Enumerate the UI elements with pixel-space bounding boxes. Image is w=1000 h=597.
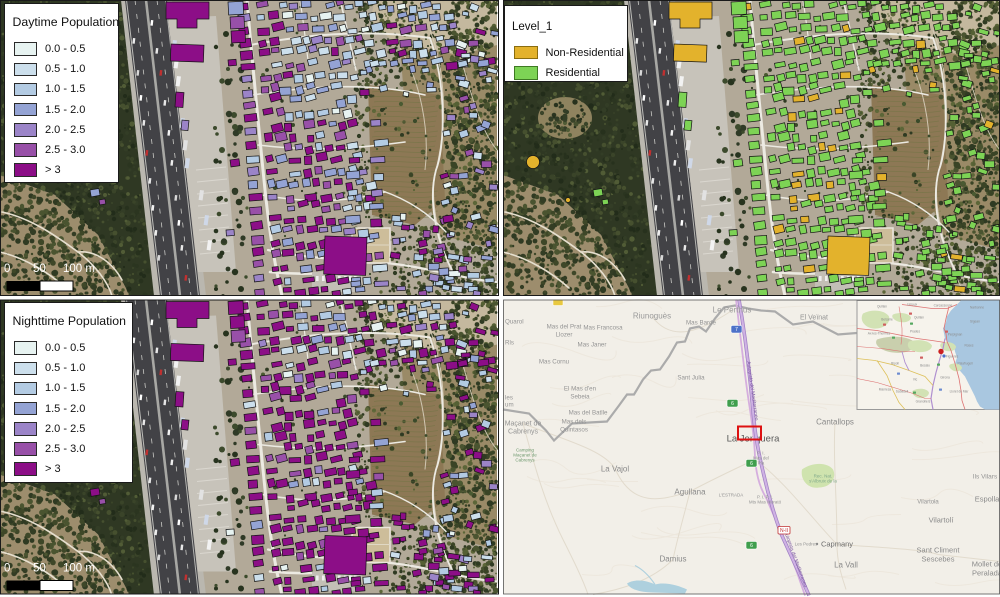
svg-text:Mts Mas Morató: Mts Mas Morató <box>749 500 782 505</box>
svg-text:Sabadell: Sabadell <box>896 390 909 394</box>
svg-text:La Vajol: La Vajol <box>601 465 630 474</box>
svg-text:Mas dels: Mas dels <box>562 419 587 426</box>
svg-text:Figueres: Figueres <box>946 355 959 359</box>
svg-text:Sant Julia: Sant Julia <box>677 375 705 382</box>
svg-text:Les Pedres: Les Pedres <box>795 542 819 547</box>
svg-text:Mas Francosa: Mas Francosa <box>583 325 623 332</box>
svg-text:les: les <box>505 395 513 402</box>
svg-text:Sescebes: Sescebes <box>922 555 955 564</box>
svg-text:Cabrenys: Cabrenys <box>508 429 538 436</box>
svg-text:La Vall: La Vall <box>834 561 858 570</box>
svg-text:Vilartolí: Vilartolí <box>929 516 955 525</box>
svg-text:Vilartoła: Vilartoła <box>917 500 939 506</box>
svg-text:Roses: Roses <box>964 344 973 348</box>
svg-text:Perpignan: Perpignan <box>948 333 963 337</box>
svg-text:Mas Cornu: Mas Cornu <box>539 359 570 366</box>
svg-text:Riunoguès: Riunoguès <box>633 312 671 321</box>
svg-text:Rls: Rls <box>505 340 514 347</box>
svg-text:s'Albruix de la: s'Albruix de la <box>809 479 837 484</box>
svg-text:Mollet de: Mollet de <box>972 560 1000 569</box>
svg-text:50: 50 <box>33 563 46 575</box>
svg-text:Quarol: Quarol <box>505 319 524 326</box>
svg-text:6: 6 <box>750 461 753 467</box>
svg-text:100 m: 100 m <box>63 563 95 575</box>
svg-text:50: 50 <box>33 263 46 275</box>
svg-text:100 m: 100 m <box>63 263 95 275</box>
svg-text:Lloret de Mar: Lloret de Mar <box>950 390 970 394</box>
svg-text:Ax-les-Thermes: Ax-les-Thermes <box>868 332 891 336</box>
svg-text:El Mas d'en: El Mas d'en <box>564 386 597 393</box>
svg-text:Maçanet de: Maçanet de <box>505 421 542 428</box>
svg-text:Narbonne: Narbonne <box>970 306 984 310</box>
svg-text:Quintasos: Quintasos <box>560 427 588 434</box>
svg-text:Besalu: Besalu <box>920 364 930 368</box>
svg-text:7: 7 <box>735 327 738 333</box>
svg-text:Quillan: Quillan <box>877 305 887 309</box>
svg-text:Mas del Prat: Mas del Prat <box>547 324 582 331</box>
svg-text:0: 0 <box>4 563 10 575</box>
svg-text:Damius: Damius <box>659 555 686 564</box>
svg-text:Cantallops: Cantallops <box>816 418 854 427</box>
svg-text:Limoux: Limoux <box>907 303 918 307</box>
svg-text:Carcassonne: Carcassonne <box>934 304 953 308</box>
svg-text:Sigean: Sigean <box>970 320 980 324</box>
svg-text:N-II: N-II <box>780 528 788 534</box>
svg-text:Pla: Pla <box>758 461 765 466</box>
svg-text:Vic: Vic <box>913 378 918 382</box>
svg-text:6: 6 <box>750 543 753 549</box>
svg-text:El Veïnat: El Veïnat <box>800 315 828 322</box>
svg-text:Mas Barde: Mas Barde <box>686 320 716 327</box>
svg-text:Palafrugell: Palafrugell <box>957 362 972 366</box>
svg-text:Manresa: Manresa <box>879 388 892 392</box>
svg-text:Agullana: Agullana <box>674 488 706 497</box>
svg-text:6: 6 <box>731 401 734 407</box>
svg-text:Girona: Girona <box>940 376 950 380</box>
svg-text:Peralada: Peralada <box>972 569 1000 578</box>
svg-text:Llozer: Llozer <box>556 332 573 339</box>
svg-text:Le Perthus: Le Perthus <box>713 306 752 315</box>
svg-text:Mas Janer: Mas Janer <box>578 342 607 349</box>
svg-text:Belcaire: Belcaire <box>881 318 893 322</box>
svg-text:Ripoll: Ripoll <box>891 362 899 366</box>
svg-text:Cabrenys: Cabrenys <box>515 458 535 463</box>
svg-text:Ils Vilars: Ils Vilars <box>973 474 998 481</box>
svg-text:Prades: Prades <box>910 330 921 334</box>
svg-text:Granollers: Granollers <box>916 400 931 404</box>
svg-text:Sant Climent: Sant Climent <box>917 546 961 555</box>
svg-text:Sebeia: Sebeia <box>570 394 590 401</box>
svg-text:0: 0 <box>4 263 10 275</box>
svg-text:L'ESTRADA: L'ESTRADA <box>719 493 744 498</box>
svg-text:Mas del Batlle: Mas del Batlle <box>569 410 608 417</box>
svg-text:Capmany: Capmany <box>821 540 853 549</box>
svg-text:Quillan: Quillan <box>914 316 924 320</box>
svg-text:um: um <box>505 402 514 409</box>
svg-text:Espolla: Espolla <box>975 495 1000 504</box>
